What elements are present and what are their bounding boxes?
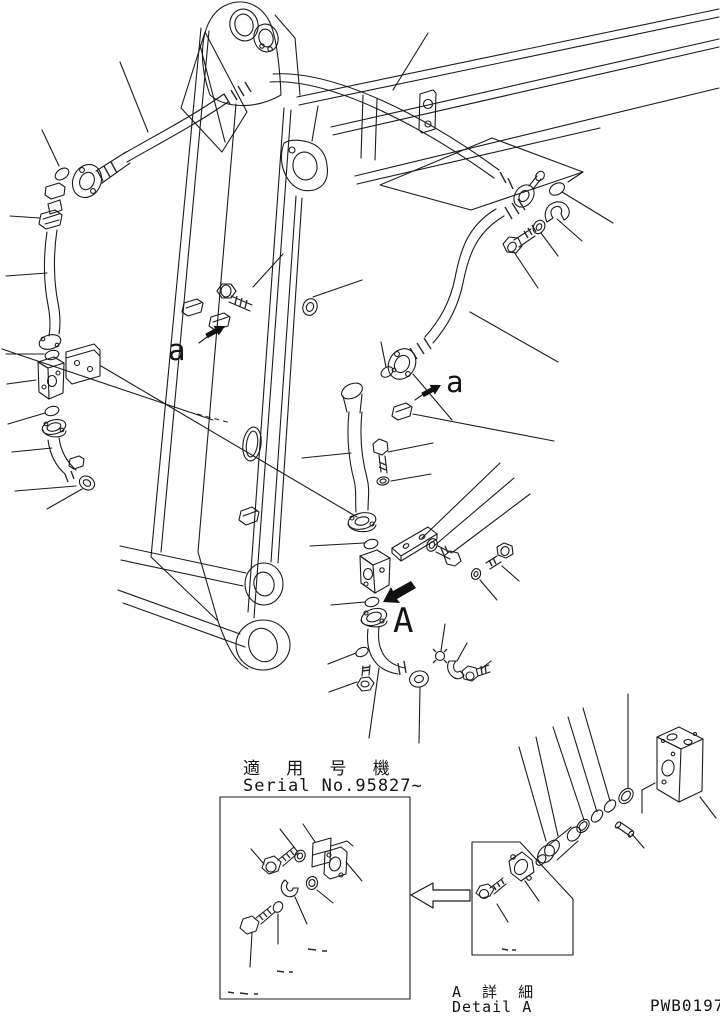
detail-pointer-arrow [411, 883, 470, 908]
section-marker-a-lower: a [446, 368, 463, 397]
boom-structure [120, 9, 719, 210]
section-marker-arrows [199, 326, 441, 400]
parts-diagram-page: a a A 適 用 号 機 Serial No.95827~ A 詳 細 Det… [0, 0, 720, 1019]
drawing-number: PWB0197 [650, 996, 720, 1015]
hose-upper-left [42, 82, 251, 202]
diagram-line-art [0, 0, 720, 1019]
detail-caption-en: Detail A [452, 998, 532, 1016]
detail-a-box [472, 694, 716, 955]
hose-s-curve [383, 170, 558, 420]
arm-assembly [118, 28, 327, 670]
serial-detail-box [220, 797, 410, 999]
center-tube-cluster [302, 342, 554, 608]
serial-note-value: Serial No.95827~ [243, 776, 423, 796]
hose-to-boom [270, 74, 513, 189]
section-marker-A: A [393, 604, 413, 638]
section-marker-a-upper: a [168, 336, 185, 365]
